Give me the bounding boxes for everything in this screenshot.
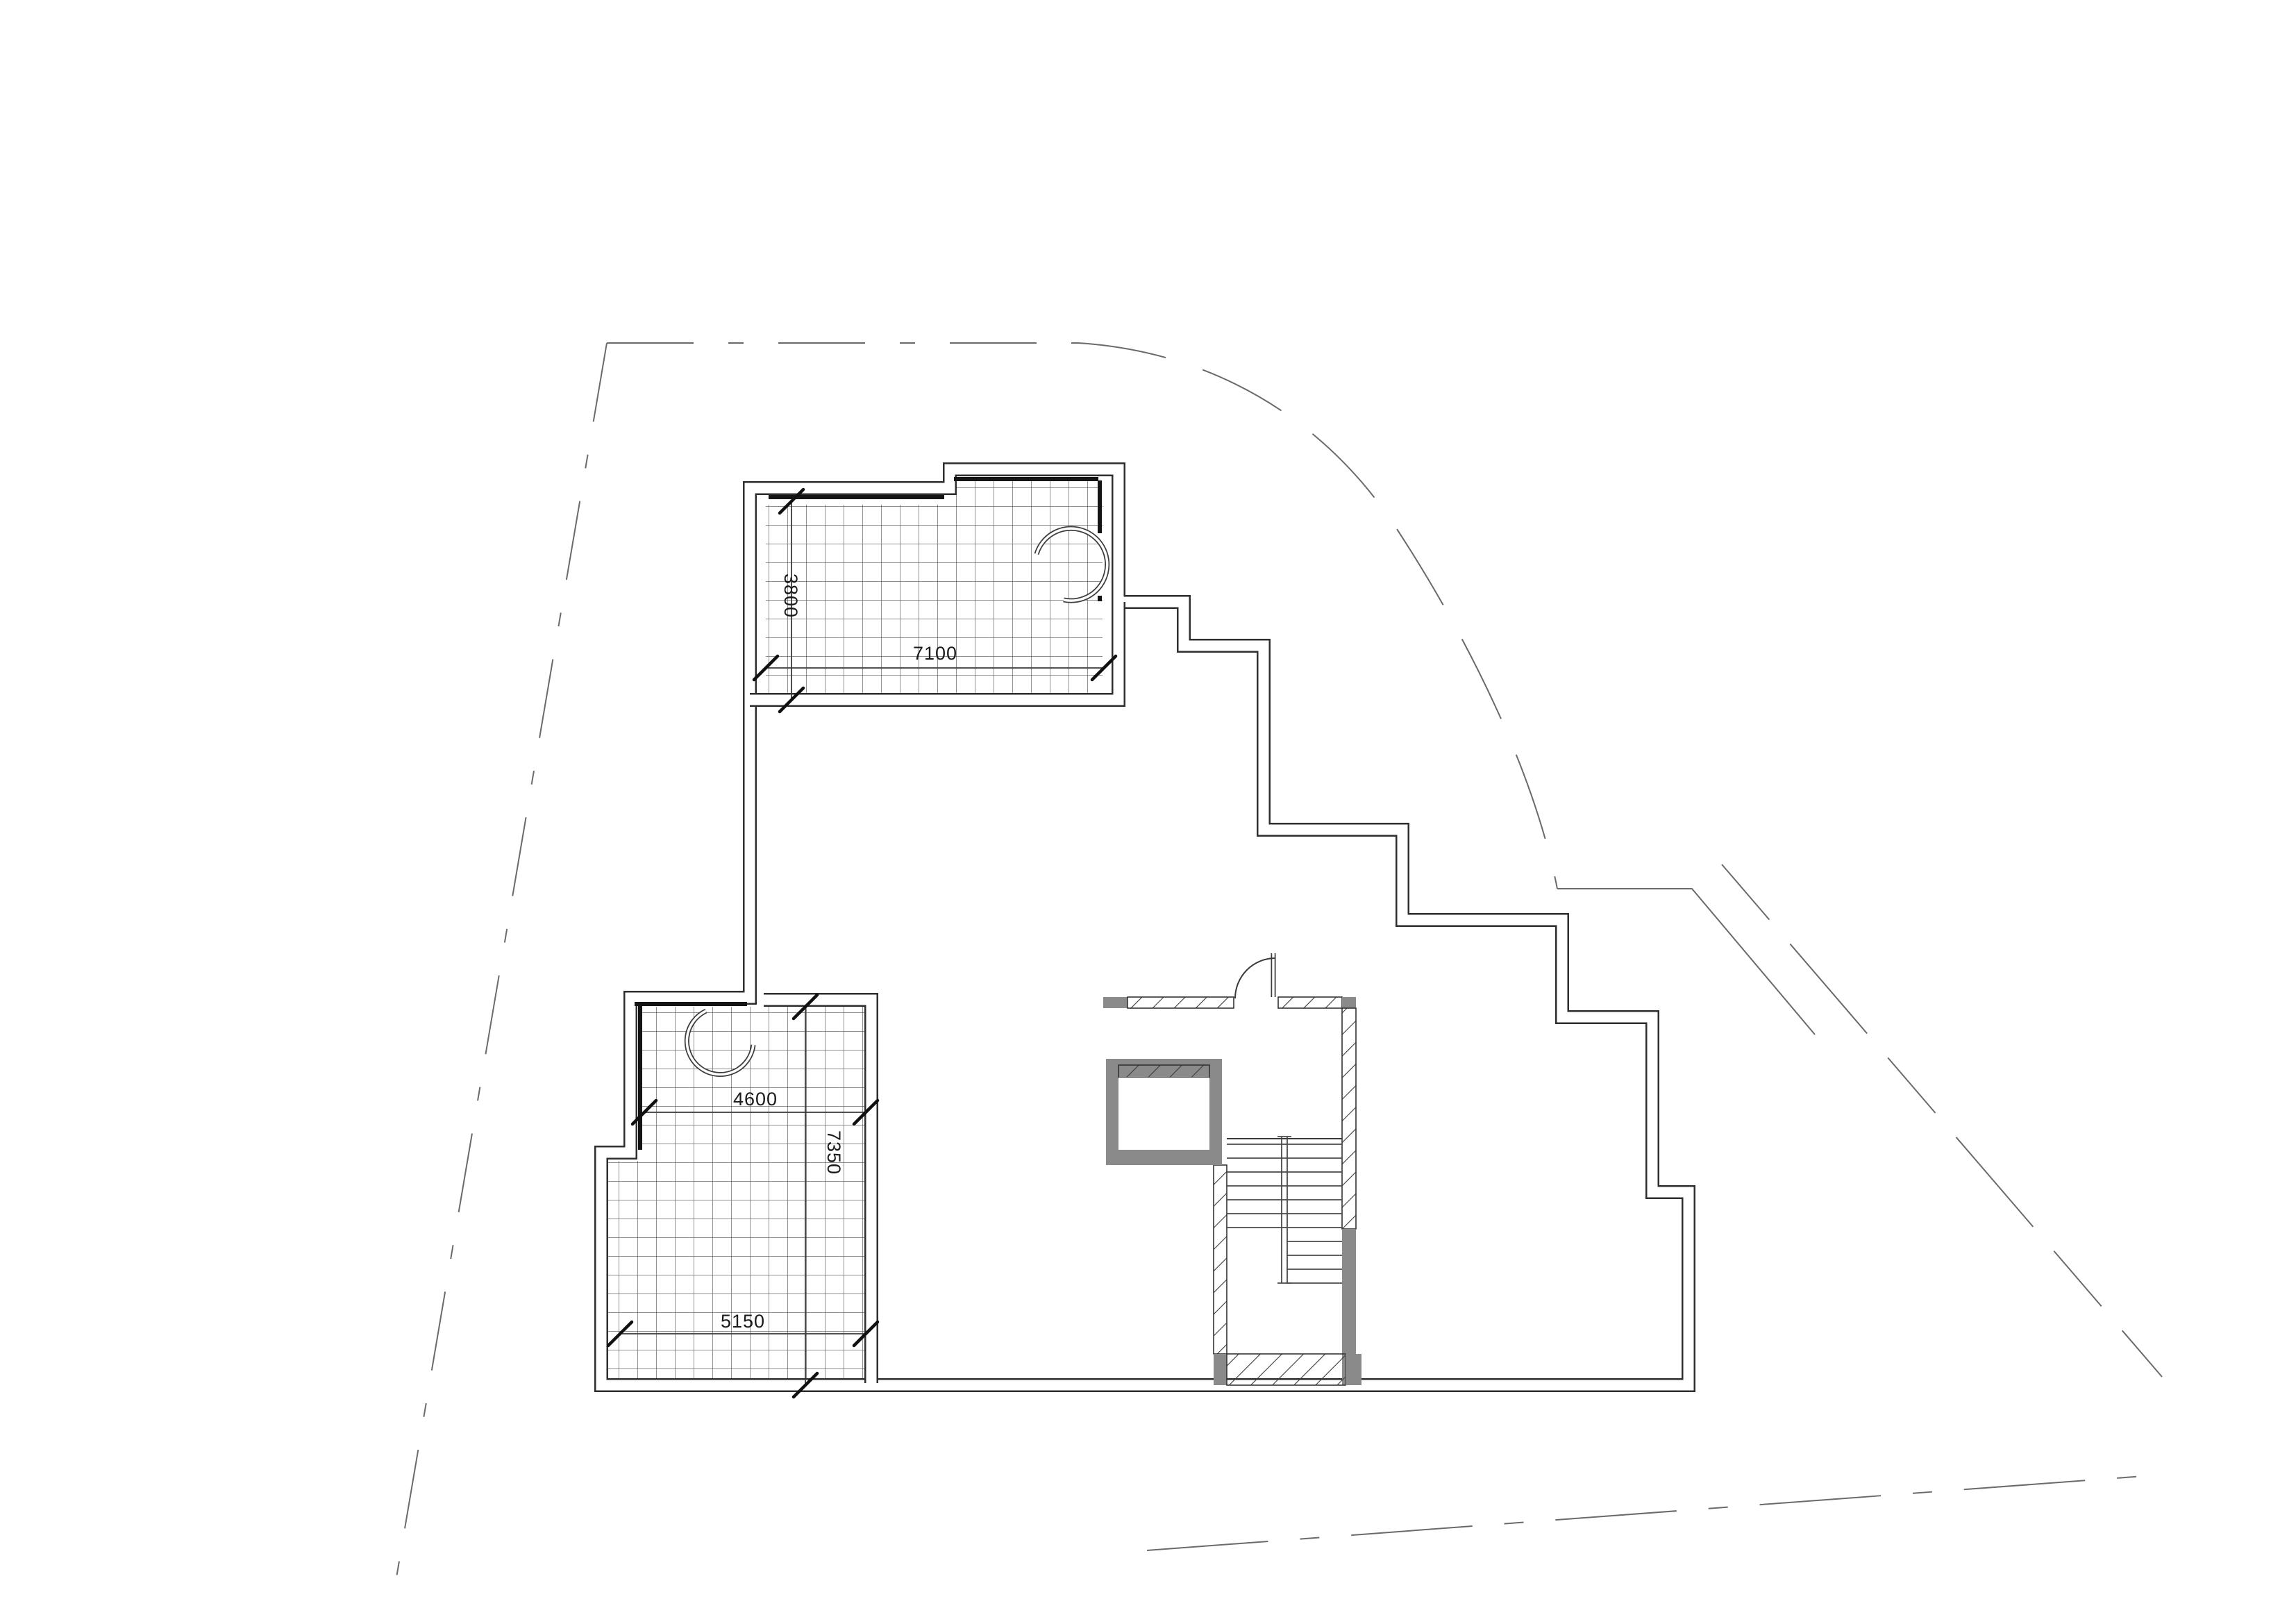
core-east-wall-hatched <box>1342 1008 1356 1229</box>
core-top-wall-hatched-west <box>1128 997 1234 1008</box>
floor-plan-drawing: 3800 7100 4600 7350 5150 <box>0 0 2296 1624</box>
site-boundary <box>396 343 2162 1577</box>
site-boundary-northeast-curve <box>1078 343 1557 889</box>
dim-text-lower-terrace-width-top: 4600 <box>733 1089 778 1110</box>
site-boundary-south <box>1147 1475 2162 1550</box>
stair-flight <box>1227 1137 1342 1283</box>
terrace-tile-grids <box>605 479 1103 1383</box>
stair-treads-half <box>1287 1241 1342 1283</box>
upper-terrace-tiles-north-strip <box>953 479 1100 505</box>
floor-plan-page: 3800 7100 4600 7350 5150 <box>0 0 2296 1624</box>
core-west-wall-hatched <box>1214 1165 1227 1354</box>
stair-core <box>1103 953 1361 1385</box>
elevator-shaft <box>1106 1059 1222 1165</box>
core-top-wall-gray-east <box>1342 997 1356 1008</box>
site-boundary-east-diagonal <box>1722 864 2162 1377</box>
lower-terrace-tiles-west-strip <box>605 1161 642 1383</box>
core-top-wall-gray-west <box>1103 997 1128 1008</box>
dim-text-lower-terrace-depth: 7350 <box>823 1130 844 1175</box>
dim-text-lower-terrace-width-bottom: 5150 <box>721 1311 765 1332</box>
elevator-front-wall-hatched <box>1118 1065 1209 1078</box>
core-west-wall-gray-block <box>1214 1354 1227 1385</box>
core-bottom-wall-gray-block <box>1346 1354 1361 1385</box>
stair-treads-full <box>1227 1144 1342 1228</box>
dim-text-upper-terrace-depth: 3800 <box>780 574 801 618</box>
elevator-cab-void <box>1118 1078 1209 1150</box>
entry-door-swing-arc <box>1235 958 1275 998</box>
site-boundary-west <box>396 343 607 1577</box>
dim-text-upper-terrace-width: 7100 <box>913 643 957 664</box>
core-top-wall-hatched-east <box>1278 997 1342 1008</box>
core-bottom-wall-hatched <box>1227 1354 1346 1385</box>
